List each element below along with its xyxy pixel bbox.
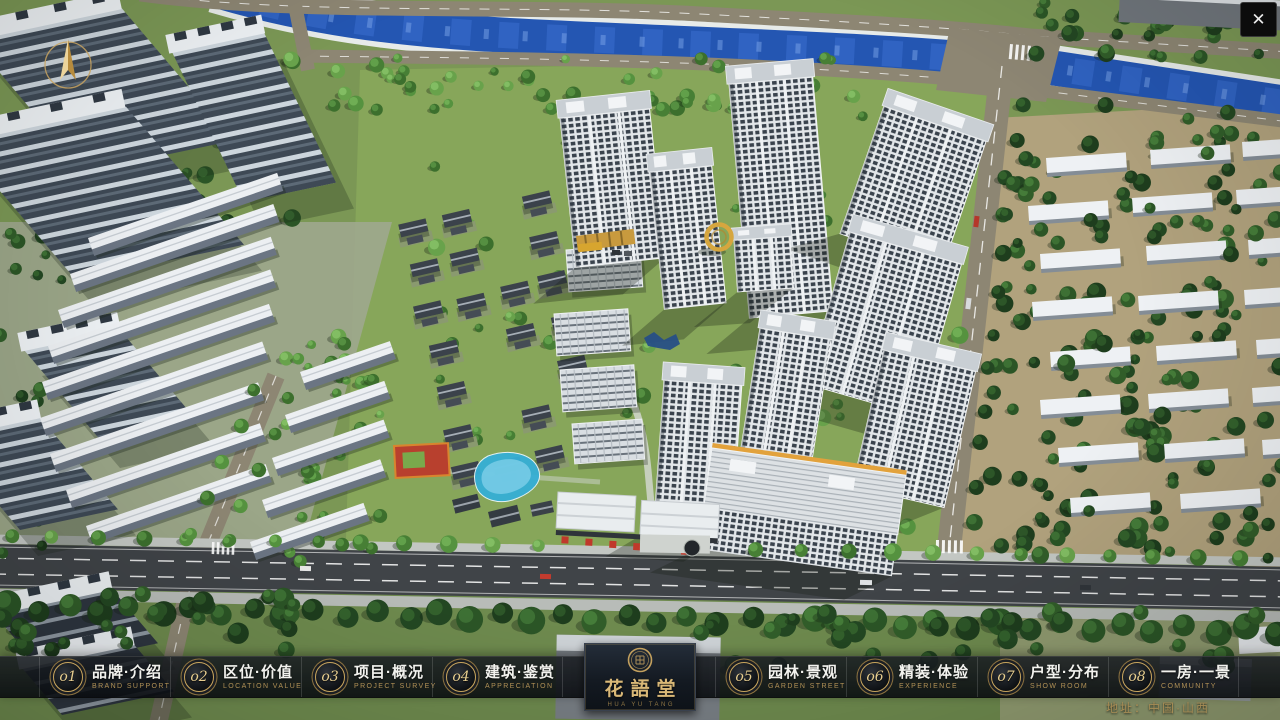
nav-item-number: o3: [321, 669, 338, 685]
north-compass-icon: [40, 34, 98, 96]
nav-item[interactable]: o1 品牌·介绍 BRAND SUPPORT: [39, 657, 170, 697]
nav-item[interactable]: o2 区位·价值 LOCATION VALUE: [170, 657, 301, 697]
nav-item-number: o5: [735, 669, 752, 685]
nav-item-label-zh: 项目·概况: [354, 665, 432, 680]
nav-item-number-badge: o7: [991, 662, 1021, 692]
nav-item[interactable]: o6 精装·体验 EXPERIENCE: [846, 657, 977, 697]
nav-item[interactable]: o3 项目·概况 PROJECT SURVEY: [301, 657, 432, 697]
project-logo-panel[interactable]: 花語堂 HUA YU TANG: [584, 643, 696, 711]
nav-item-labels: 户型·分布 SHOW ROOM: [1030, 665, 1100, 690]
nav-item-label-en: PROJECT SURVEY: [354, 683, 432, 690]
nav-item-label-zh: 品牌·介绍: [92, 665, 170, 680]
nav-item-label-zh: 园林·景观: [768, 665, 846, 680]
nav-item-number-badge: o4: [446, 662, 476, 692]
nav-item[interactable]: o7 户型·分布 SHOW ROOM: [977, 657, 1108, 697]
nav-item-labels: 建筑·鉴赏 APPRECIATION: [485, 665, 555, 690]
nav-item-number-badge: o8: [1122, 662, 1152, 692]
nav-item-label-en: COMMUNITY: [1161, 683, 1231, 690]
nav-item-label-en: APPRECIATION: [485, 683, 555, 690]
nav-item-label-en: BRAND SUPPORT: [92, 683, 170, 690]
nav-item-labels: 品牌·介绍 BRAND SUPPORT: [92, 665, 170, 690]
nav-item-number: o8: [1128, 669, 1145, 685]
nav-item-label-zh: 一房·一景: [1161, 665, 1231, 680]
nav-item-number-badge: o6: [860, 662, 890, 692]
nav-item-number-badge: o1: [53, 662, 83, 692]
nav-group-right: o5 园林·景观 GARDEN STREET o6 精装·体验 EXPERIEN…: [715, 657, 1239, 697]
close-button[interactable]: ✕: [1240, 2, 1277, 37]
clubhouse: [394, 443, 450, 478]
nav-item-labels: 一房·一景 COMMUNITY: [1161, 665, 1231, 690]
project-logo-subtitle: HUA YU TANG: [605, 702, 675, 708]
nav-item-number-badge: o2: [184, 662, 214, 692]
nav-item-number-badge: o5: [729, 662, 759, 692]
nav-item-label-zh: 建筑·鉴赏: [485, 665, 555, 680]
masterplan-app-window: ✕ o1 品牌·介绍 BRAND SUPPORT o2: [0, 0, 1280, 720]
nav-item-label-zh: 户型·分布: [1030, 665, 1100, 680]
nav-item-label-en: LOCATION VALUE: [223, 683, 301, 690]
nav-item-labels: 区位·价值 LOCATION VALUE: [223, 665, 301, 690]
nav-item-number: o6: [866, 669, 883, 685]
project-logo-title: 花語堂: [597, 674, 682, 701]
nav-item[interactable]: o8 一房·一景 COMMUNITY: [1108, 657, 1239, 697]
nav-item-number: o2: [190, 669, 207, 685]
aerial-masterplan-render: [0, 0, 1280, 720]
nav-group-left: o1 品牌·介绍 BRAND SUPPORT o2 区位·价值 LOCATION…: [39, 657, 563, 697]
nav-item-number: o1: [59, 669, 76, 685]
nav-item-label-zh: 精装·体验: [899, 665, 969, 680]
nav-item-label-en: SHOW ROOM: [1030, 683, 1100, 690]
nav-item-label-en: GARDEN STREET: [768, 683, 846, 690]
nav-item-labels: 园林·景观 GARDEN STREET: [768, 665, 846, 690]
nav-item-label-en: EXPERIENCE: [899, 683, 969, 690]
nav-item-labels: 项目·概况 PROJECT SURVEY: [354, 665, 432, 690]
seal-icon: [627, 647, 653, 673]
project-address: 地址：中国·山西: [1106, 699, 1210, 716]
nav-item-number: o7: [997, 669, 1014, 685]
nav-item-number: o4: [452, 669, 469, 685]
nav-item[interactable]: o4 建筑·鉴赏 APPRECIATION: [432, 657, 563, 697]
nav-item-label-zh: 区位·价值: [223, 665, 301, 680]
nav-item-labels: 精装·体验 EXPERIENCE: [899, 665, 969, 690]
nav-item-number-badge: o3: [315, 662, 345, 692]
nav-item[interactable]: o5 园林·景观 GARDEN STREET: [715, 657, 846, 697]
